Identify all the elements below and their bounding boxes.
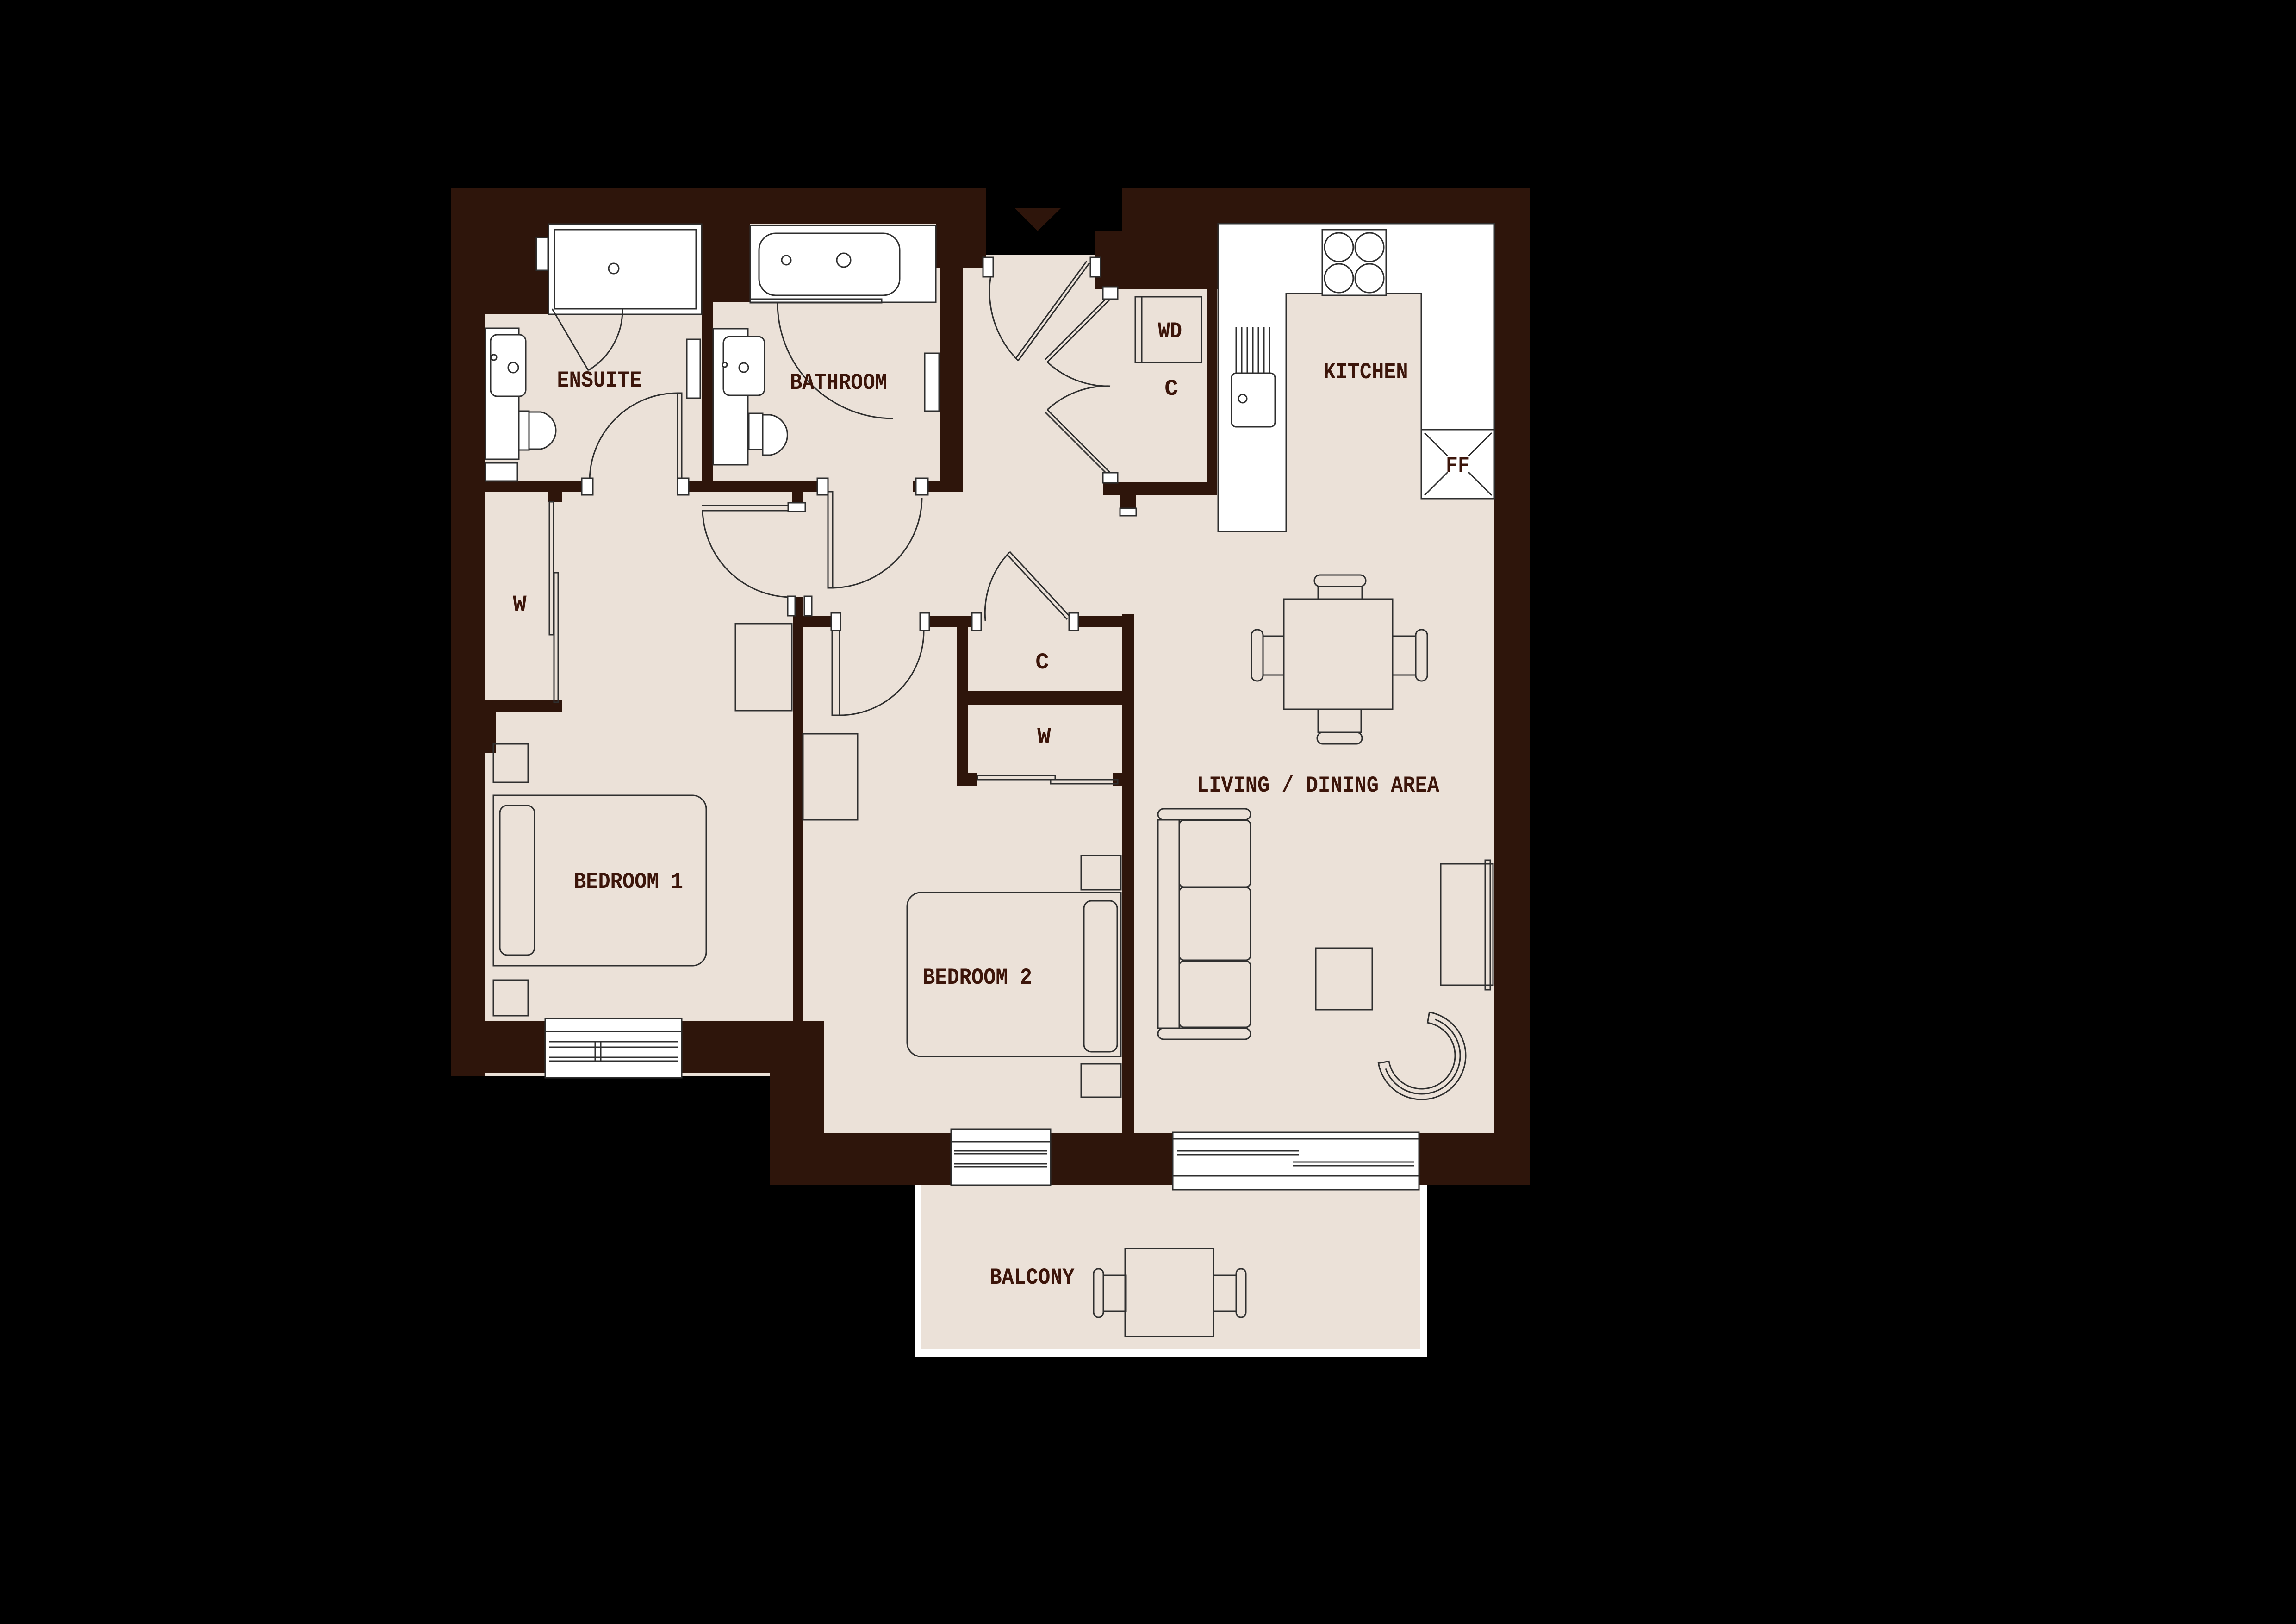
svg-text:BATHROOM: BATHROOM	[790, 370, 887, 396]
svg-text:ENSUITE: ENSUITE	[557, 368, 642, 394]
svg-text:FF: FF	[1446, 453, 1470, 479]
svg-text:KITCHEN: KITCHEN	[1324, 359, 1408, 385]
svg-text:LIVING / DINING AREA: LIVING / DINING AREA	[1197, 773, 1440, 799]
svg-text:W: W	[1037, 724, 1051, 750]
svg-text:BEDROOM 2: BEDROOM 2	[923, 965, 1032, 991]
svg-text:C: C	[1035, 650, 1049, 675]
svg-text:BALCONY: BALCONY	[990, 1265, 1075, 1291]
svg-text:C: C	[1164, 376, 1178, 402]
svg-text:BEDROOM 1: BEDROOM 1	[574, 869, 683, 895]
svg-text:W: W	[513, 592, 527, 618]
svg-text:WD: WD	[1158, 319, 1182, 344]
